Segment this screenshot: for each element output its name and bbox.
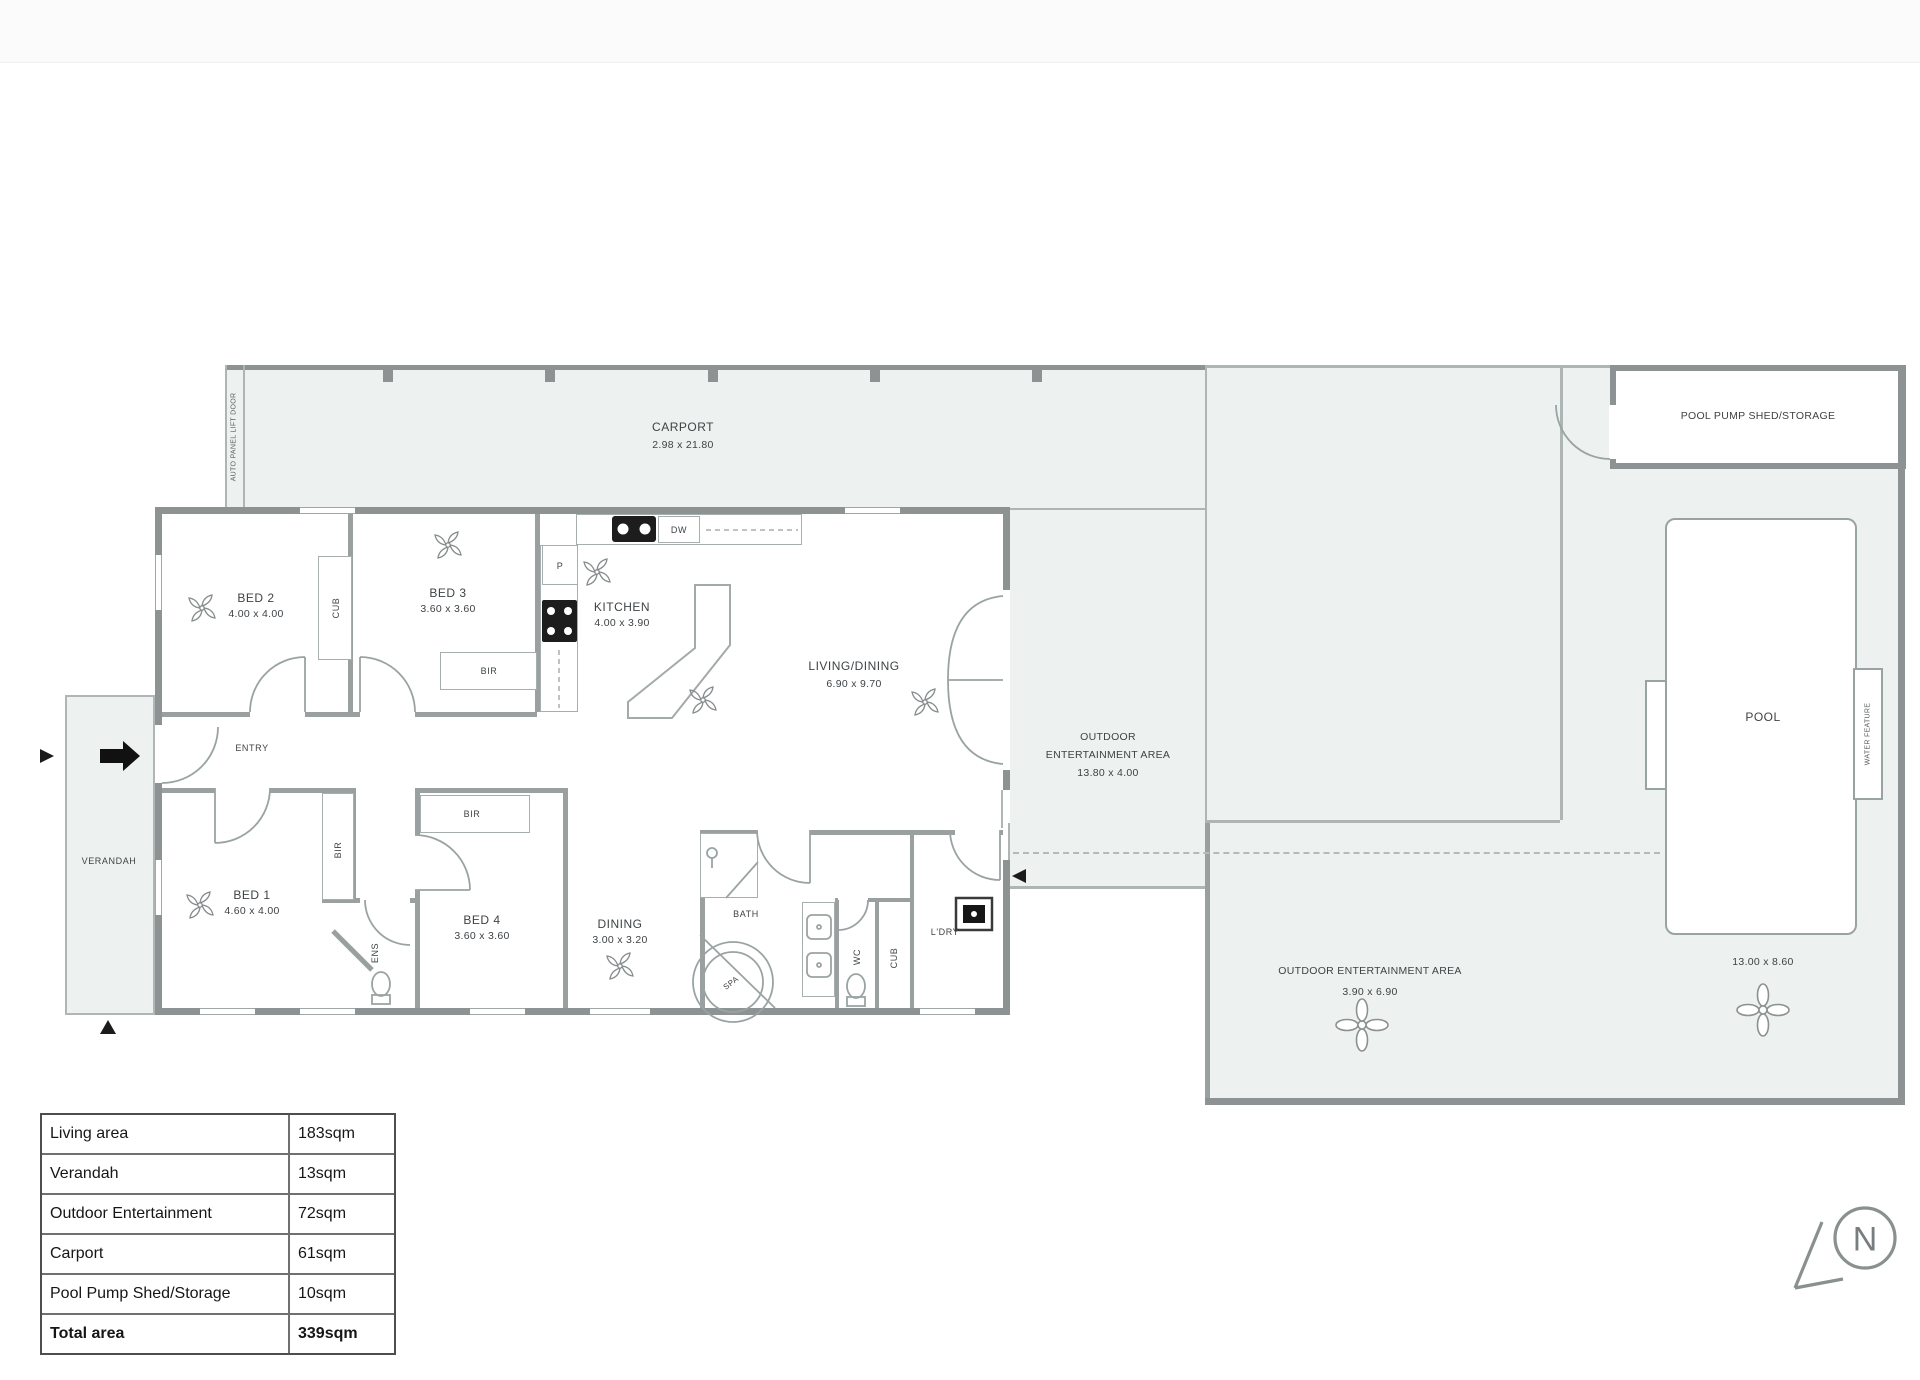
carport-dims: 2.98 x 21.80 [652,439,713,451]
area-label: Total area [42,1315,290,1353]
kitchen-label: KITCHEN [594,600,650,614]
oea2-dims: 3.90 x 6.90 [1342,986,1397,998]
door-entry [162,727,218,783]
area-label: Pool Pump Shed/Storage [42,1275,290,1313]
area-value: 13sqm [290,1155,394,1193]
robe-label: BIR [481,666,498,676]
area-value: 339sqm [290,1315,394,1353]
entry-label: ENTRY [235,743,268,753]
door-wc [838,900,868,930]
sink-bowl [640,524,651,535]
bed4-label: BED 4 [463,913,500,927]
pool-dims: 13.00 x 8.60 [1732,956,1793,968]
area-summary-table: Living area 183sqm Verandah 13sqm Outdoo… [40,1113,396,1355]
door-ensuite [365,900,410,945]
laundry-fixtures [956,898,992,930]
area-value: 72sqm [290,1195,394,1233]
bed2-dims: 4.00 x 4.00 [228,608,283,620]
bed3-label: BED 3 [429,586,466,600]
burner [564,607,572,615]
robe-label: BIR [333,842,343,859]
living-label: LIVING/DINING [808,659,899,673]
kitchen-dims: 4.00 x 3.90 [594,617,649,629]
floor-plan-canvas: CARPORT 2.98 x 21.80 AUTO PANEL LIFT DOO… [0,0,1920,1380]
carport-label: CARPORT [652,420,714,434]
ac-fan-icon [607,953,633,979]
dishwasher-label: DW [671,525,687,535]
oea1-line1: OUTDOOR [1080,731,1136,743]
bed4-dims: 3.60 x 3.60 [454,930,509,942]
area-label: Verandah [42,1155,290,1193]
pool-label: POOL [1745,710,1780,724]
cupboard-label: CUB [331,598,341,619]
door-bed3 [360,657,415,712]
marker-triangle [1012,869,1026,883]
bath-label: BATH [733,909,759,919]
area-label: Outdoor Entertainment [42,1195,290,1233]
oea1-line2: ENTERTAINMENT AREA [1046,749,1170,761]
stove-icon [542,600,577,642]
area-label: Living area [42,1115,290,1153]
shower-door [726,862,758,898]
table-row: Living area 183sqm [42,1115,394,1155]
garden-fan-icon [1336,999,1388,1051]
oea2-label: OUTDOOR ENTERTAINMENT AREA [1278,965,1461,977]
ac-fan-icon [690,687,716,713]
table-row: Carport 61sqm [42,1235,394,1275]
marker-triangle [40,749,54,763]
table-row: Outdoor Entertainment 72sqm [42,1195,394,1235]
bed1-dims: 4.60 x 4.00 [224,905,279,917]
ac-fan-icon [435,532,461,558]
toilet-icon [372,972,390,996]
shower-head-icon [707,848,717,858]
marker-triangle [100,1020,116,1034]
bed3-dims: 3.60 x 3.60 [420,603,475,615]
burner [547,627,555,635]
door-bed4 [415,835,470,890]
toilet-icon [847,974,865,998]
door-laundry [950,830,1000,880]
basin-icon [807,953,831,977]
bed2-label: BED 2 [237,591,274,605]
water-feature-label: WATER FEATURE [1865,703,1872,766]
area-label: Carport [42,1235,290,1273]
burner [564,627,572,635]
spa-surround [700,935,775,1008]
kitchen-fixtures [542,516,798,718]
oea1-dims: 13.80 x 4.00 [1077,767,1138,779]
door-shed [1556,405,1610,459]
living-dims: 6.90 x 9.70 [826,678,881,690]
ac-fan-icon [189,595,215,621]
auto-door-label: AUTO PANEL LIFT DOOR [231,393,238,482]
pantry-label: P [557,561,564,571]
shed-label: POOL PUMP SHED/STORAGE [1681,410,1836,422]
verandah-label: VERANDAH [82,856,137,866]
ac-fan-icon [187,892,213,918]
table-row: Verandah 13sqm [42,1155,394,1195]
entry-arrow-icon [100,741,140,771]
trough-drain [971,911,977,917]
ensuite-label: ENS [370,943,380,963]
cupboard-label: CUB [889,948,899,969]
ac-fan-icon [912,689,938,715]
area-value: 183sqm [290,1115,394,1153]
dining-label: DINING [598,917,643,931]
basin-drain [817,963,821,967]
ac-fan-icon [584,559,610,585]
dining-dims: 3.00 x 3.20 [592,934,647,946]
door-bath [757,830,810,883]
robe-label: BIR [464,809,481,819]
french-doors-icon [948,596,1003,764]
basin-icon [807,915,831,939]
wc-label: WC [852,949,862,965]
laundry-label: L'DRY [931,927,960,937]
bed1-label: BED 1 [233,888,270,902]
basin-drain [817,925,821,929]
burner [547,607,555,615]
garden-fan-icon [1737,984,1789,1036]
north-compass [1795,1208,1895,1288]
door-arcs [162,405,1610,945]
compass-north-label: N [1853,1221,1878,1260]
table-row: Pool Pump Shed/Storage 10sqm [42,1275,394,1315]
area-value: 61sqm [290,1235,394,1273]
door-bed2 [250,657,305,712]
sink-bowl [618,524,629,535]
table-row-total: Total area 339sqm [42,1315,394,1353]
door-bed1 [215,788,270,843]
area-value: 10sqm [290,1275,394,1313]
